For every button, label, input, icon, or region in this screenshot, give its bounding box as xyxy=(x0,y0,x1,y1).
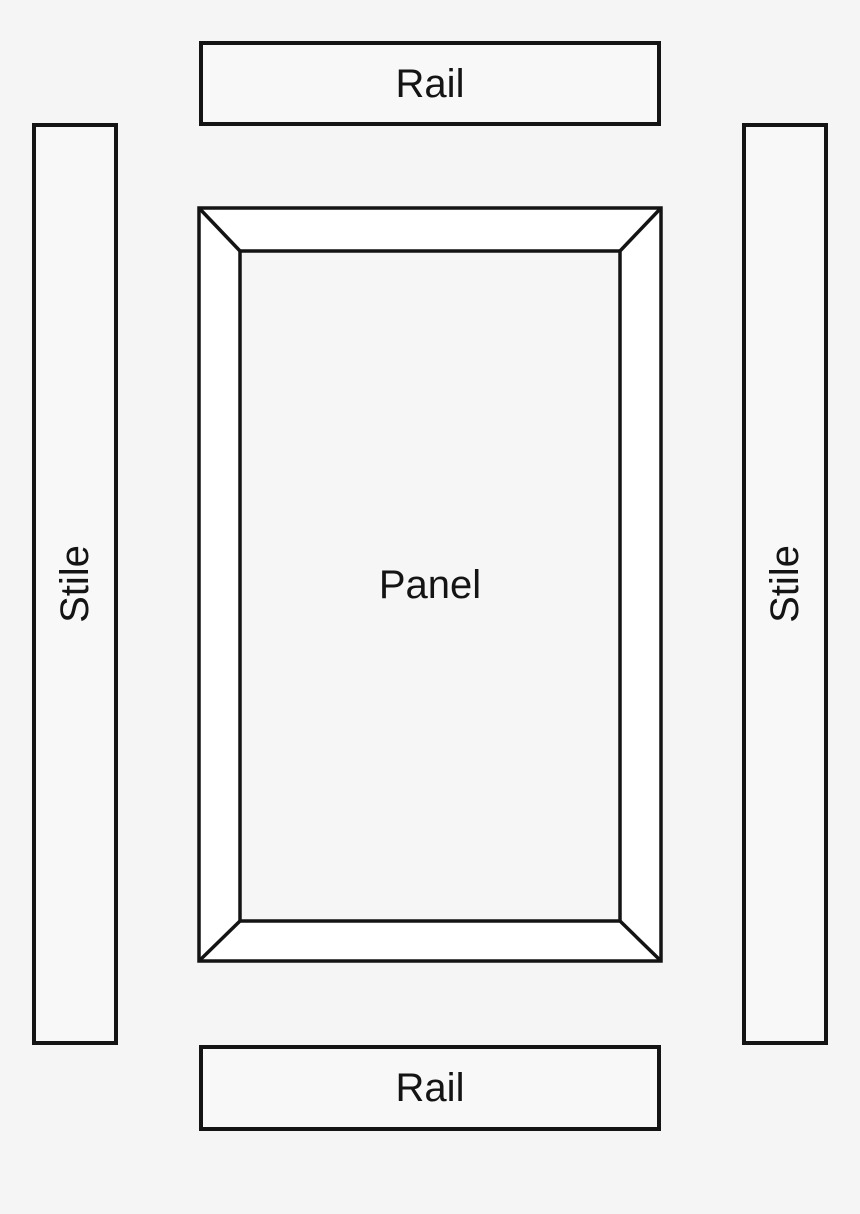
left-stile-label: Stile xyxy=(53,545,97,623)
bottom-rail-box: Rail xyxy=(199,1045,661,1131)
right-stile-label: Stile xyxy=(763,545,807,623)
panel-frame-drawing xyxy=(197,206,663,963)
right-stile-box: Stile xyxy=(742,123,828,1045)
bottom-rail-label: Rail xyxy=(396,1066,465,1110)
top-rail-box: Rail xyxy=(199,41,661,126)
frame-and-panel-diagram: Rail Stile Panel Stile Rail xyxy=(0,0,860,1214)
panel-assembly: Panel xyxy=(197,206,663,963)
panel-field xyxy=(240,251,620,921)
top-rail-label: Rail xyxy=(396,62,465,106)
left-stile-box: Stile xyxy=(32,123,118,1045)
